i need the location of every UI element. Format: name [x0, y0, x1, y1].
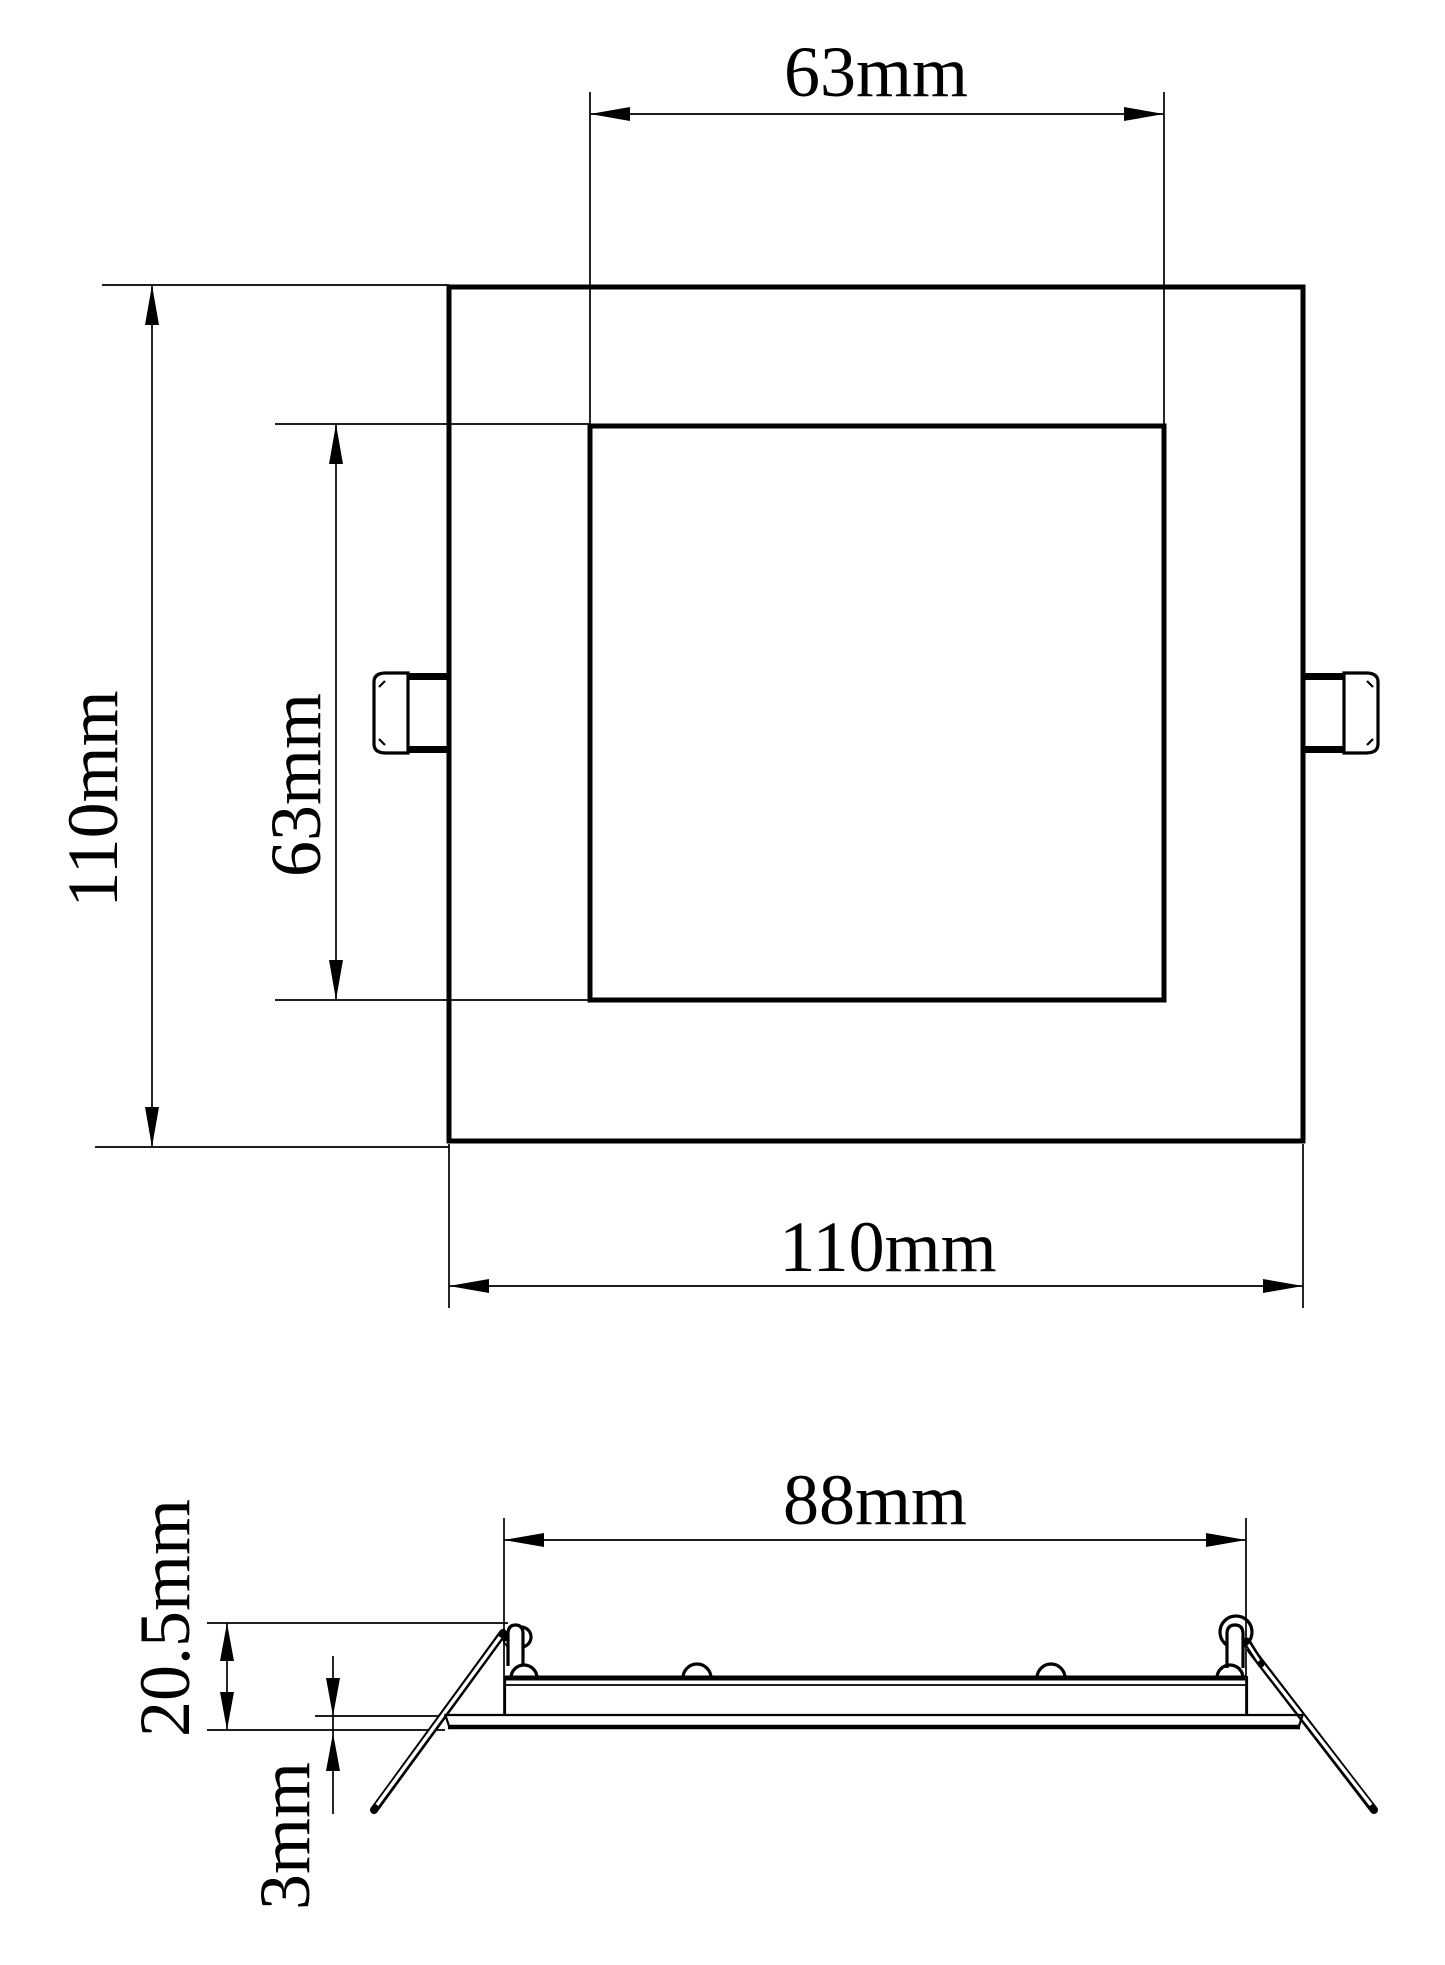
- dimension-inner-cutout-height: 63mm: [256, 424, 592, 1000]
- flange-left-tip: [445, 1714, 450, 1729]
- dimension-top-cutout-width: 63mm: [590, 32, 1164, 424]
- panel-inner-lens: [590, 426, 1164, 1000]
- dim-label-overall-width: 110mm: [779, 1207, 996, 1287]
- left-spring-arm: [374, 1633, 518, 1810]
- arrowhead-bottom: [220, 1692, 234, 1730]
- dim-label-flange-thickness: 3mm: [245, 1762, 325, 1910]
- clip-bar: [1301, 746, 1344, 753]
- front-view: 63mm 110mm 63mm 110mm: [53, 32, 1378, 1308]
- arrowhead-right: [1124, 107, 1164, 121]
- dim-label-overall-depth: 20.5mm: [125, 1499, 205, 1737]
- arrowhead-left: [449, 1279, 489, 1293]
- arrowhead-up: [326, 1733, 340, 1771]
- technical-drawing-page: 63mm 110mm 63mm 110mm: [0, 0, 1445, 1965]
- spring-core: [377, 1637, 500, 1805]
- arrowhead-top: [329, 424, 343, 464]
- arrowhead-top: [220, 1623, 234, 1661]
- left-clip-front: [374, 673, 451, 753]
- arrowhead-bottom: [145, 1107, 159, 1147]
- dimension-flange-thickness: 3mm: [245, 1656, 445, 1910]
- arrowhead-down: [326, 1678, 340, 1716]
- arrowhead-right: [1263, 1279, 1303, 1293]
- panel-outer-frame: [449, 287, 1303, 1141]
- arrowhead-right: [1206, 1533, 1246, 1547]
- dim-label-cutout-width: 63mm: [784, 32, 968, 112]
- arrowhead-left: [504, 1533, 544, 1547]
- clip-end-cap: [374, 673, 408, 753]
- right-clip-bracket: [1227, 1625, 1243, 1668]
- clip-bar: [408, 746, 451, 753]
- clip-bar: [1301, 673, 1344, 680]
- clip-end-cap: [1344, 673, 1378, 753]
- right-clip-front: [1301, 673, 1378, 753]
- dim-label-cutout-height: 63mm: [256, 693, 336, 877]
- arrowhead-bottom: [329, 960, 343, 1000]
- clip-bar: [408, 673, 451, 680]
- dim-label-recess-width: 88mm: [783, 1460, 967, 1540]
- dimension-bottom-overall-width: 110mm: [449, 1144, 1303, 1308]
- arrowhead-top: [145, 285, 159, 325]
- panel-body-profile: [505, 1676, 1247, 1716]
- spring-core: [1254, 1654, 1371, 1805]
- left-clip-bracket: [508, 1625, 523, 1666]
- flange-profile: [445, 1714, 1303, 1729]
- arrowhead-left: [590, 107, 630, 121]
- side-view: 88mm 20.5mm 3mm: [125, 1460, 1374, 1910]
- led-panel-dimension-drawing: 63mm 110mm 63mm 110mm: [0, 0, 1445, 1965]
- dim-label-overall-height: 110mm: [53, 690, 133, 907]
